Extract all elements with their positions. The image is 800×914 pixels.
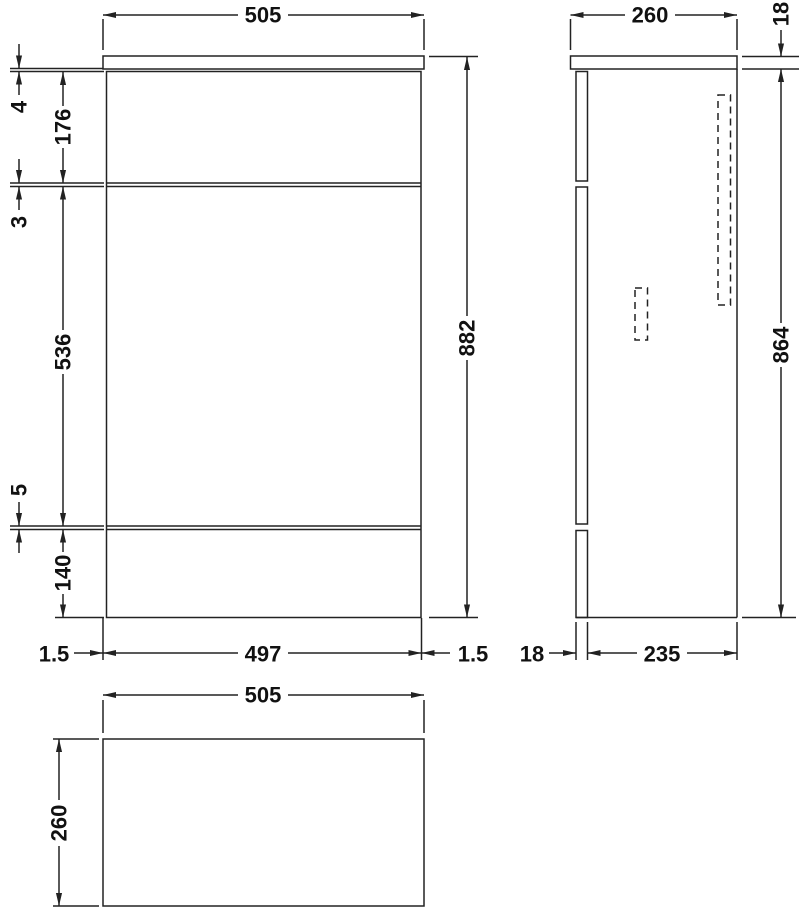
- dim-side-body-height: 864: [742, 69, 796, 618]
- technical-drawing: 505 4 176 3 536 5: [0, 0, 800, 914]
- dim-label: 3: [7, 216, 32, 228]
- dim-label: 1.5: [458, 642, 489, 667]
- dim-front-plinth: 140: [51, 530, 76, 618]
- dim-front-upper-section: 176: [51, 72, 76, 183]
- dim-label: 176: [51, 109, 76, 146]
- dim-label: 505: [245, 683, 282, 708]
- dim-label: 536: [51, 334, 76, 371]
- side-front-panel-lower: [576, 531, 588, 618]
- front-view: [103, 56, 424, 618]
- dim-label: 882: [455, 320, 480, 357]
- dim-side-top-depth: 260: [571, 3, 738, 51]
- plan-view: [103, 739, 424, 906]
- dim-front-top-reveal: 3: [7, 159, 32, 228]
- dim-label: 18: [769, 2, 794, 26]
- plan-outline: [103, 739, 424, 906]
- dim-label: 140: [51, 555, 76, 592]
- side-front-panel-mid: [576, 187, 588, 524]
- dim-label: 5: [7, 484, 32, 496]
- front-worktop: [103, 56, 424, 69]
- dim-front-top-width: 505: [103, 3, 424, 51]
- side-view: [571, 56, 738, 618]
- side-hidden-slot-tall: [718, 95, 731, 305]
- dim-label: 864: [769, 326, 794, 363]
- dim-front-bottom-width: 1.5 497 1.5: [39, 618, 489, 667]
- dim-side-worktop-thickness: 18: [742, 2, 799, 69]
- dim-front-mid-section: 536: [51, 187, 76, 527]
- dim-label: 260: [632, 3, 669, 28]
- dim-plan-width: 505: [103, 683, 424, 734]
- dim-label: 18: [520, 642, 544, 667]
- side-worktop: [571, 56, 738, 69]
- dim-label: 4: [7, 100, 32, 113]
- dim-label: 260: [47, 805, 72, 842]
- dim-front-worktop-gap: 4: [7, 44, 32, 113]
- side-hidden-slot-small: [635, 288, 648, 340]
- side-front-panel-upper: [576, 72, 588, 182]
- dim-front-overall-height: 882: [429, 57, 480, 618]
- dim-plan-depth: 260: [47, 739, 100, 906]
- dim-label: 505: [245, 3, 282, 28]
- dim-side-bottom-depth: 18 235: [520, 622, 737, 667]
- front-cabinet-body: [107, 72, 422, 618]
- dim-label: 235: [644, 642, 681, 667]
- dim-front-bottom-reveal: 5: [7, 484, 32, 553]
- dim-label: 497: [245, 642, 282, 667]
- dim-label: 1.5: [39, 642, 70, 667]
